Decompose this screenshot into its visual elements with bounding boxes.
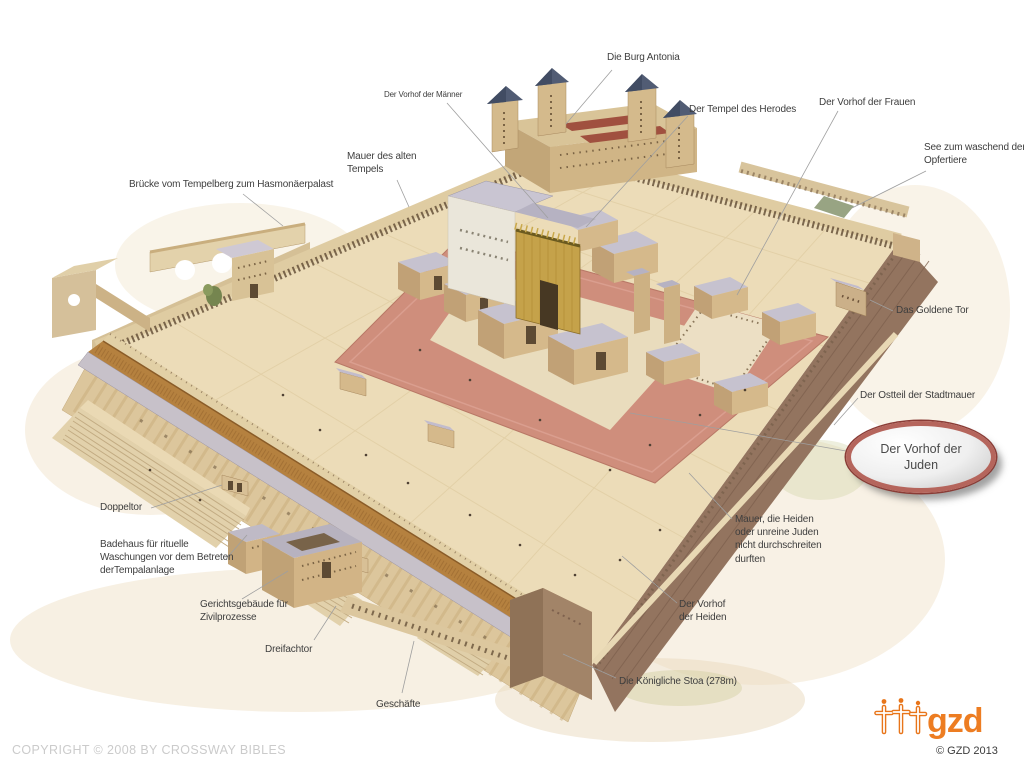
label-dreifachtor: Dreifachtor — [265, 643, 312, 656]
label-bruecke: Brücke vom Tempelberg zum Hasmonäerpalas… — [129, 178, 333, 191]
copyright-text: COPYRIGHT © 2008 BY CROSSWAY BIBLES — [12, 743, 286, 757]
label-vorhof-maenner: Der Vorhof der Männer — [384, 90, 462, 100]
callout-vorhof-der-juden: Der Vorhof der Juden — [846, 421, 996, 493]
label-ostteil-stadtmauer: Der Ostteil der Stadtmauer — [860, 389, 975, 402]
label-vorhof-heiden: Der Vorhof der Heiden — [679, 598, 726, 624]
gzd-logo-text: gzd — [927, 702, 983, 740]
label-mauer-alten-tempels: Mauer des alten Tempels — [347, 150, 416, 176]
gzd-cross-icon — [877, 698, 926, 732]
label-badehaus: Badehaus für rituelle Waschungen vor dem… — [100, 538, 233, 578]
gzd-year: © GZD 2013 — [936, 745, 998, 757]
label-mauer-heiden: Mauer, die Heiden oder unreine Juden nic… — [735, 513, 822, 566]
slide: Die Burg Antonia Der Vorhof der Männer D… — [0, 0, 1024, 768]
label-geschaefte: Geschäfte — [376, 698, 420, 711]
label-see-opfertiere: See zum waschend der Opfertiere — [924, 141, 1024, 167]
label-koenigliche-stoa: Die Königliche Stoa (278m) — [619, 675, 737, 688]
label-goldene-tor: Das Goldene Tor — [896, 304, 969, 317]
label-doppeltor: Doppeltor — [100, 501, 142, 514]
gzd-logo: gzd — [874, 694, 1014, 740]
temple-mount-illustration — [0, 0, 1024, 768]
label-gerichtsgebaeude: Gerichtsgebäude für Zivilprozesse — [200, 598, 288, 624]
label-burg-antonia: Die Burg Antonia — [607, 51, 680, 64]
label-vorhof-frauen: Der Vorhof der Frauen — [819, 96, 915, 109]
label-tempel-herodes: Der Tempel des Herodes — [689, 103, 796, 116]
